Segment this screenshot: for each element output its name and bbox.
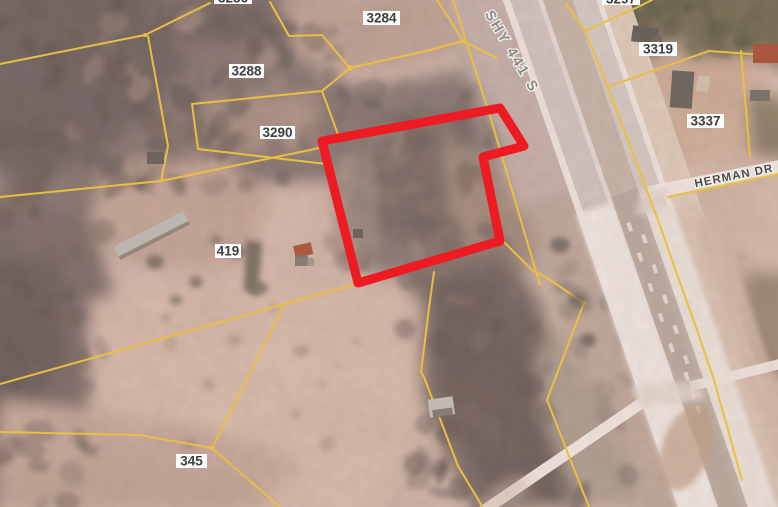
svg-text:345: 345	[180, 454, 203, 469]
svg-text:3288: 3288	[231, 64, 262, 79]
svg-text:3286: 3286	[218, 0, 249, 6]
svg-text:3284: 3284	[366, 11, 397, 26]
svg-text:3297: 3297	[606, 0, 636, 7]
svg-text:419: 419	[217, 244, 240, 259]
svg-text:3337: 3337	[690, 114, 720, 129]
svg-text:3319: 3319	[643, 42, 673, 57]
svg-text:3290: 3290	[262, 125, 292, 140]
